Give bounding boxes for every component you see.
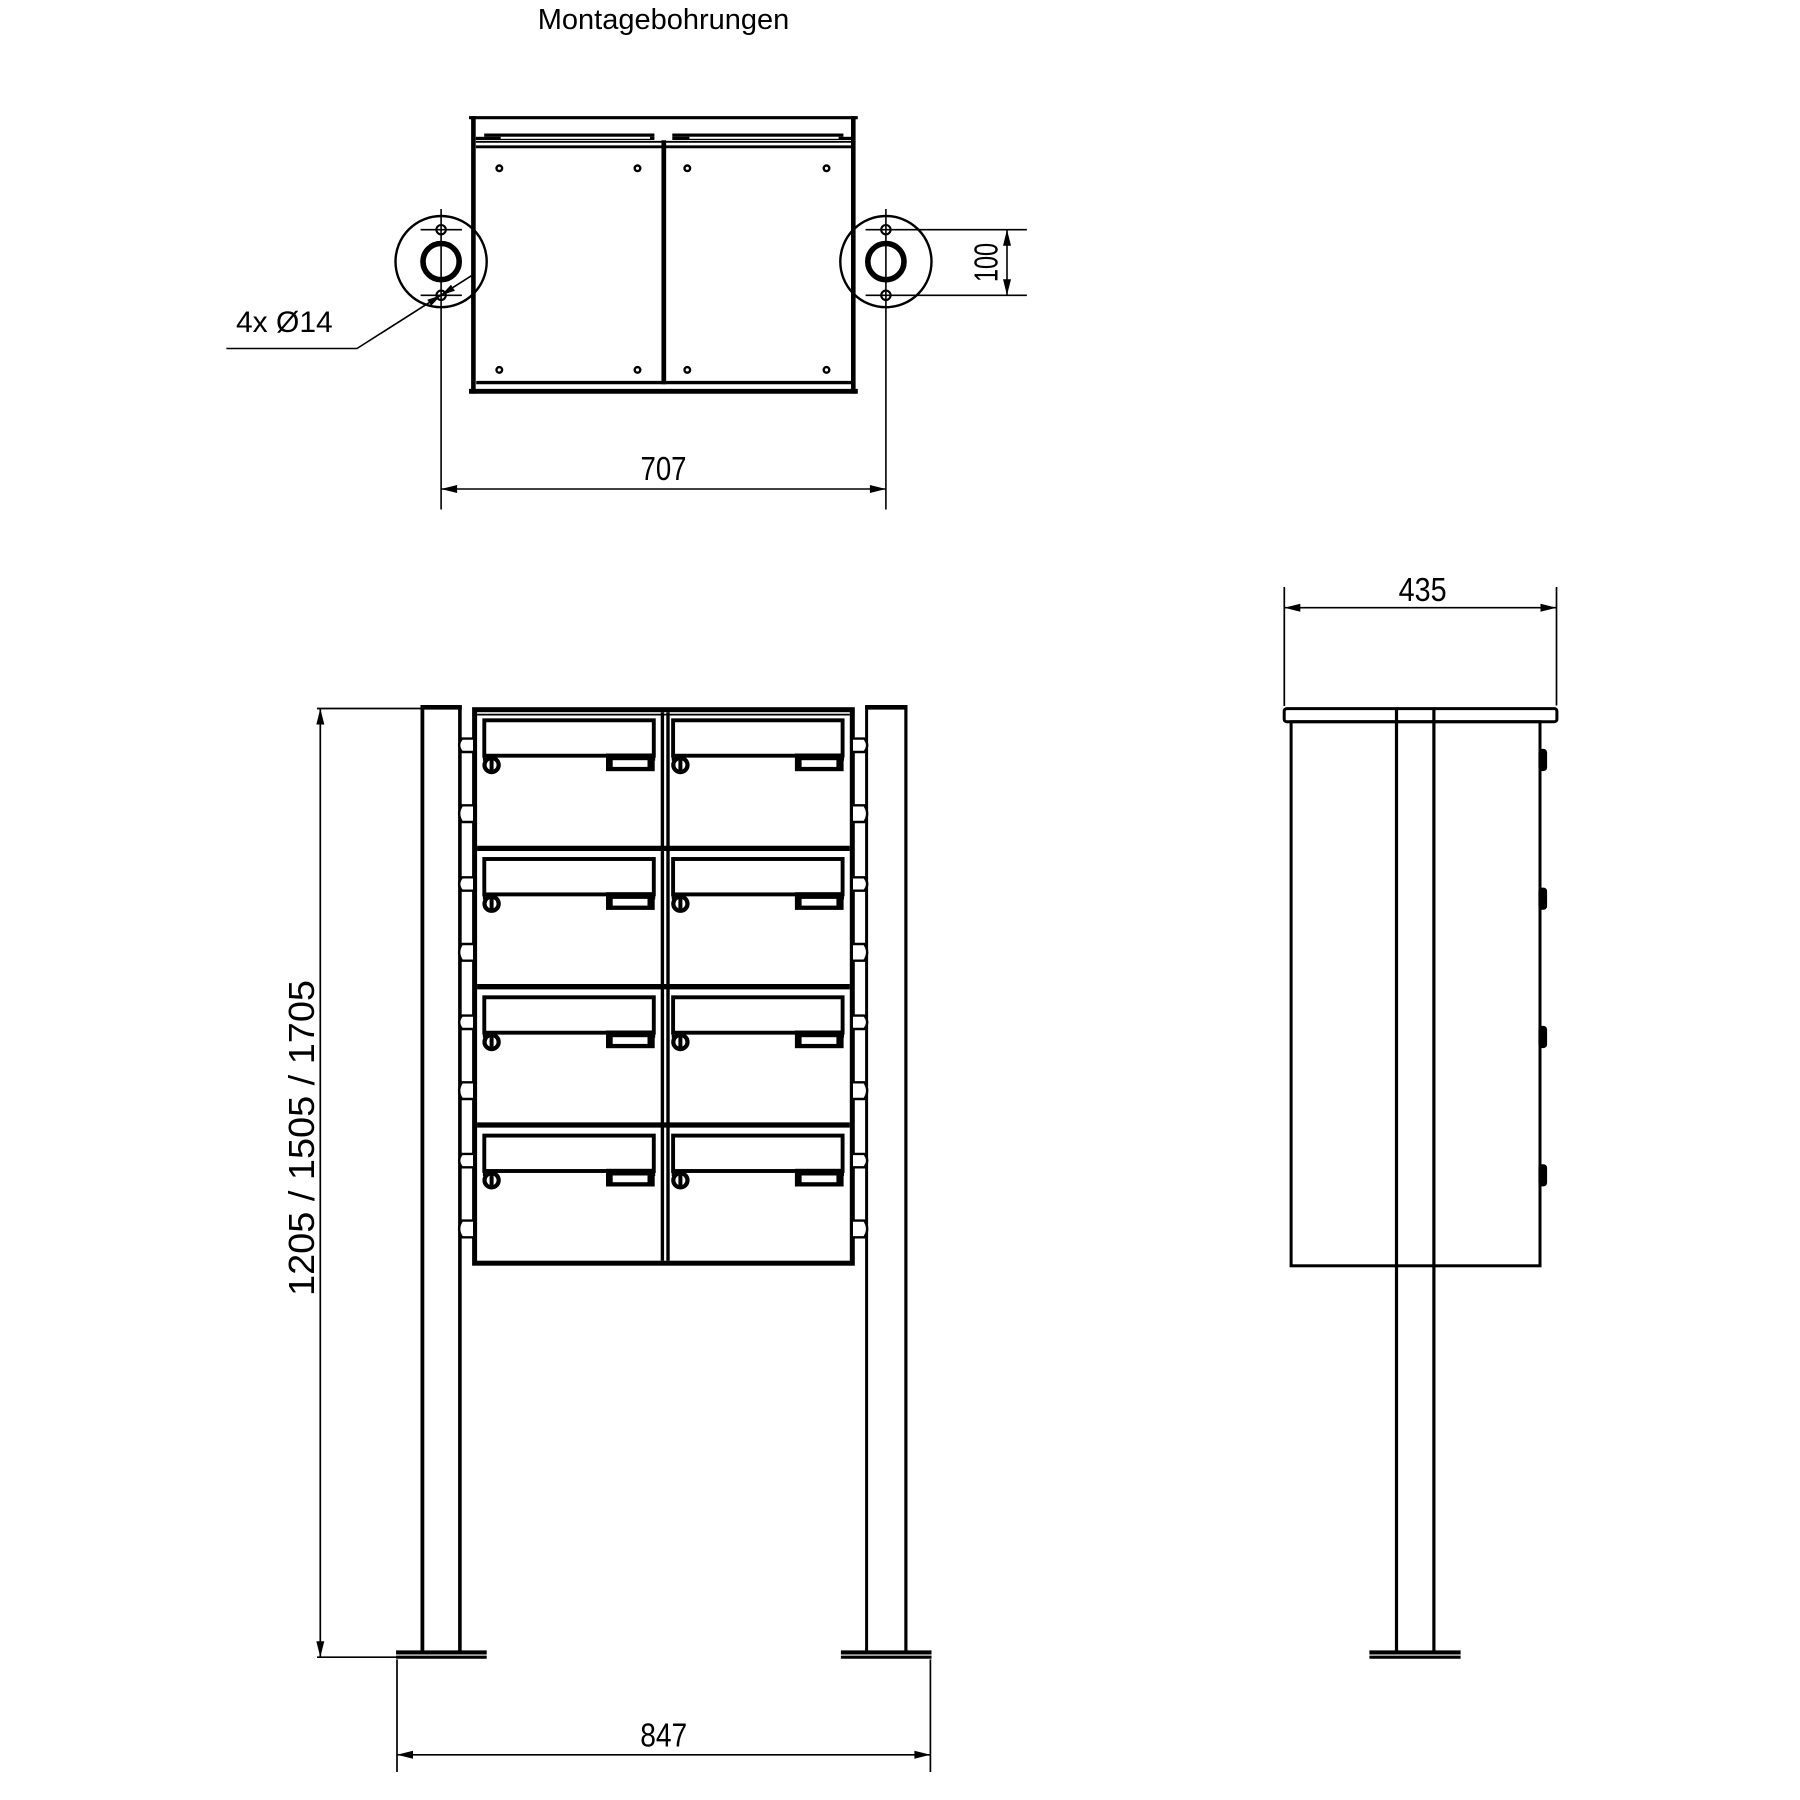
svg-text:435: 435 (1399, 571, 1447, 608)
svg-text:4x Ø14: 4x Ø14 (236, 306, 333, 339)
svg-text:707: 707 (641, 450, 687, 487)
svg-text:1205 / 1505 / 1705: 1205 / 1505 / 1705 (281, 980, 322, 1296)
svg-text:100: 100 (968, 243, 1005, 282)
svg-text:Montagebohrungen: Montagebohrungen (538, 4, 790, 36)
svg-text:847: 847 (640, 1717, 687, 1754)
